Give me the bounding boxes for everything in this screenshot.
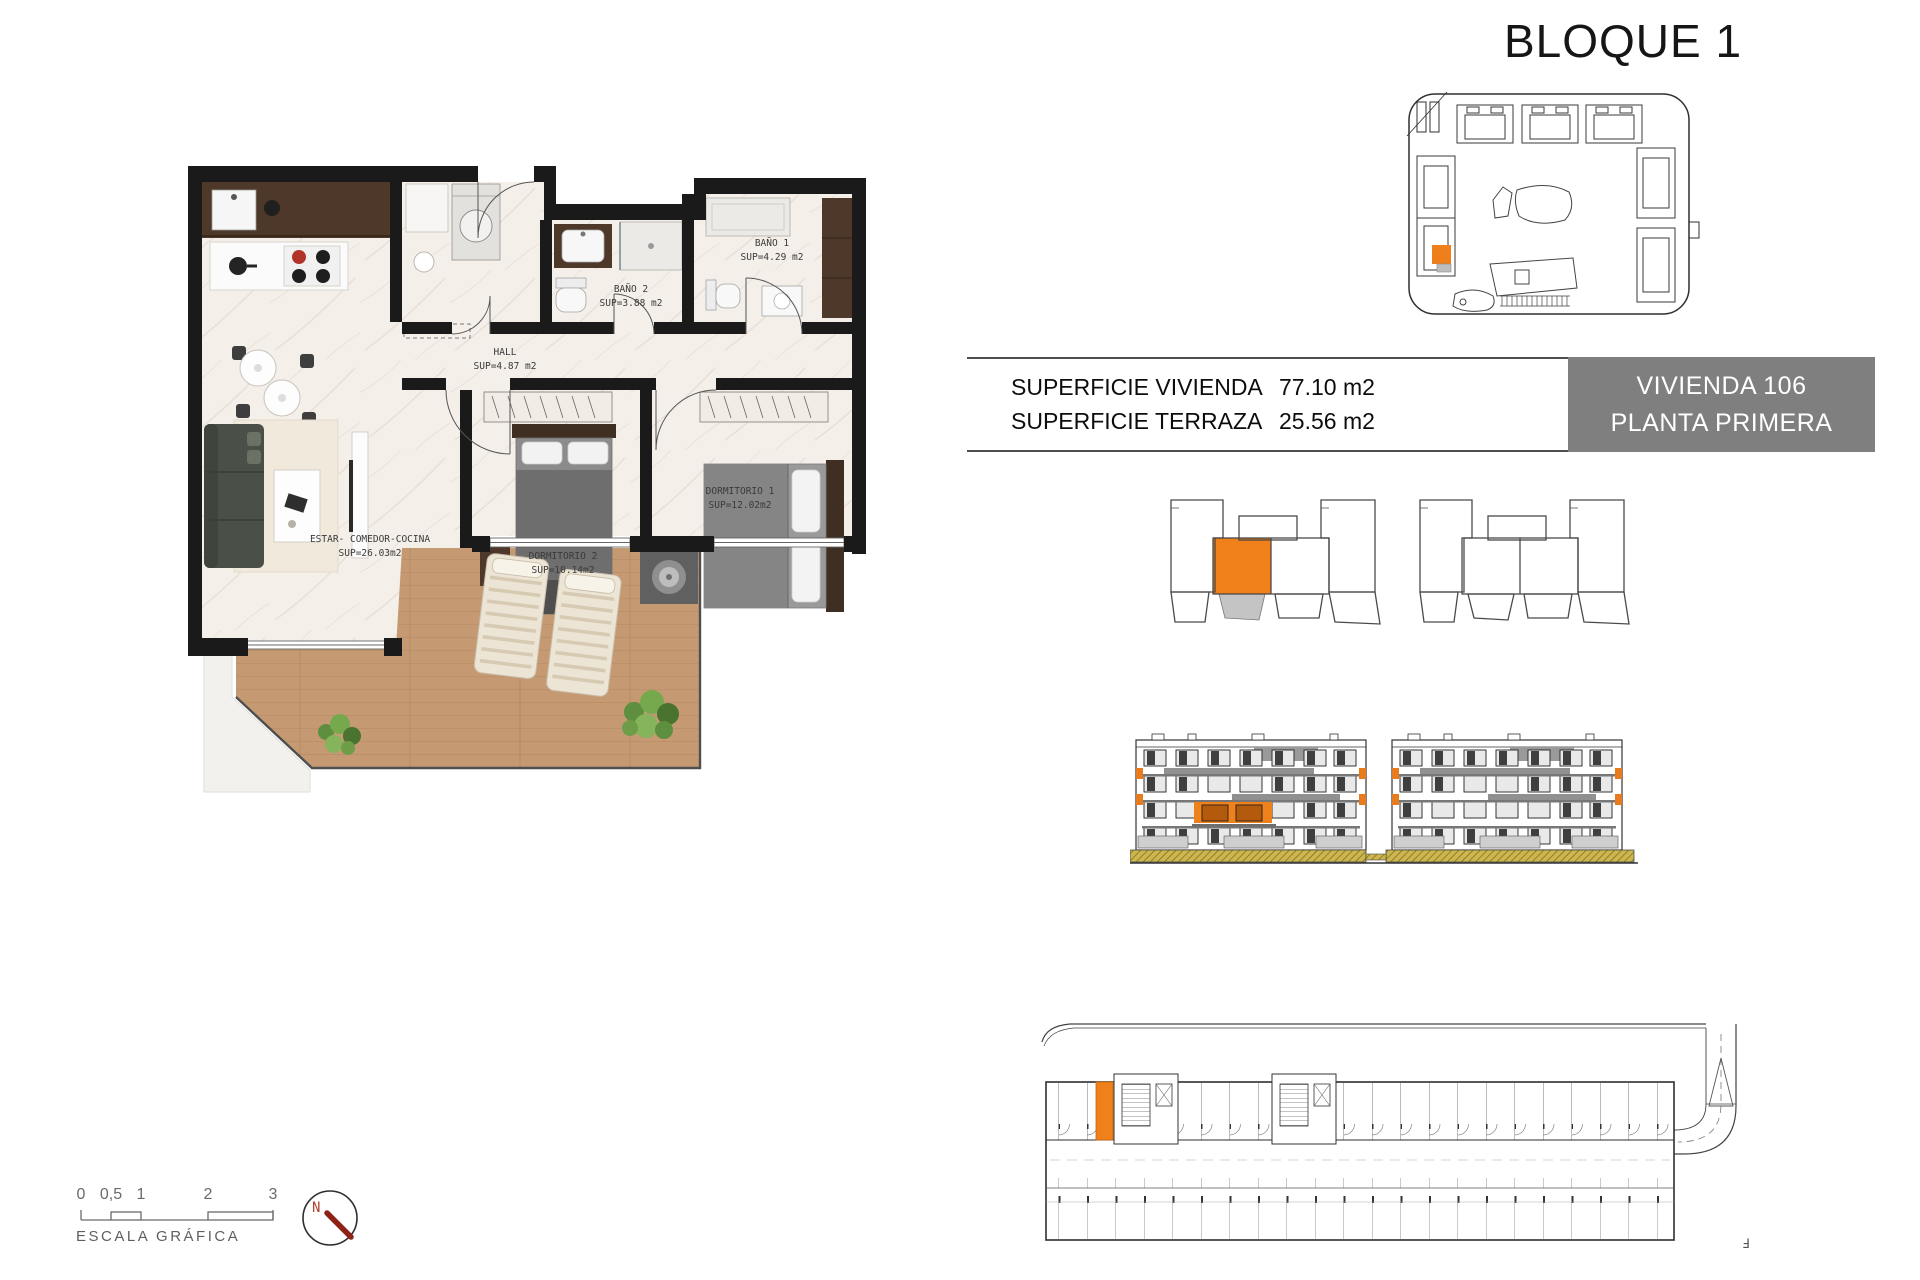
scale-bar-graphic [60,1206,300,1224]
page-title: BLOQUE 1 [1500,14,1746,68]
sheet-mark: Ⅎ [1742,1237,1749,1252]
terrace-side-table [640,550,698,604]
scale-tick: 0,5 [100,1186,122,1204]
garage-highlight-storeroom [1096,1082,1113,1140]
surface-terraza-value: 25.56 m2 [1279,408,1375,435]
highlighted-unit-terrace [1219,594,1265,620]
scale-tick: 1 [137,1186,146,1204]
parking-row [1046,1178,1674,1240]
keyplan-buildings-right [1637,148,1675,302]
laundry-closet [406,184,500,272]
scale-tick: 3 [269,1186,278,1204]
surface-vivienda-value: 77.10 m2 [1279,374,1375,401]
kitchen-island [210,242,348,290]
sofa [204,424,264,568]
room-label-hall: HALLSUP=4.87 m2 [474,346,537,374]
room-label-bano2: BAÑO 2SUP=3.88 m2 [600,283,663,311]
elevation-right [1392,734,1622,850]
room-label-bano1: BAÑO 1SUP=4.29 m2 [741,237,804,265]
site-boundary [1409,94,1689,314]
room-label-dormitorio1: DORMITORIO 1SUP=12.02m2 [706,485,775,513]
garage-level-plan: Ⅎ [1030,1008,1770,1258]
surface-info-table: SUPERFICIE VIVIENDA 77.10 m2 SUPERFICIE … [967,357,1568,452]
unit-identifier-box: VIVIENDA 106 PLANTA PRIMERA [1568,357,1875,452]
keyplan-buildings-top [1457,105,1642,143]
stair-core [1114,1074,1178,1144]
block-plan-left [1163,488,1381,638]
table-row: SUPERFICIE TERRAZA 25.56 m2 [1011,405,1568,439]
stair-core [1272,1074,1336,1144]
surface-vivienda-label: SUPERFICIE VIVIENDA [1011,374,1279,401]
keyplan-highlight-unit [1432,245,1451,264]
scale-tick: 2 [204,1186,213,1204]
table-row: SUPERFICIE VIVIENDA 77.10 m2 [1011,371,1568,405]
highlighted-unit-plan [1213,538,1271,594]
elevation-left [1136,734,1366,850]
room-label-dormitorio2: DORMITORIO 2SUP=10.14m2 [529,550,598,578]
kitchen-counter [202,182,390,238]
north-label: N [312,1200,320,1216]
room-label-estar: ESTAR- COMEDOR-COCINASUP=26.03m2 [310,533,430,561]
north-compass-icon: N [296,1184,366,1254]
scale-label: ESCALA GRÁFICA [76,1228,240,1245]
building-elevations [1130,726,1640,876]
surface-terraza-label: SUPERFICIE TERRAZA [1011,408,1279,435]
block-plan-right [1412,488,1630,638]
scale-tick: 0 [77,1186,86,1204]
keyplan-pools [1493,185,1572,223]
plan-sheet: { "title": "BLOQUE 1", "info_table": { "… [0,0,1920,1280]
unit-number: VIVIENDA 106 [1637,368,1807,405]
site-keyplan [1405,72,1705,324]
unit-floor: PLANTA PRIMERA [1611,405,1833,442]
elevation-ground [1130,850,1638,863]
coffee-table [274,470,320,542]
cooktop [284,246,340,286]
keyplan-bottom-structures [1453,258,1577,311]
